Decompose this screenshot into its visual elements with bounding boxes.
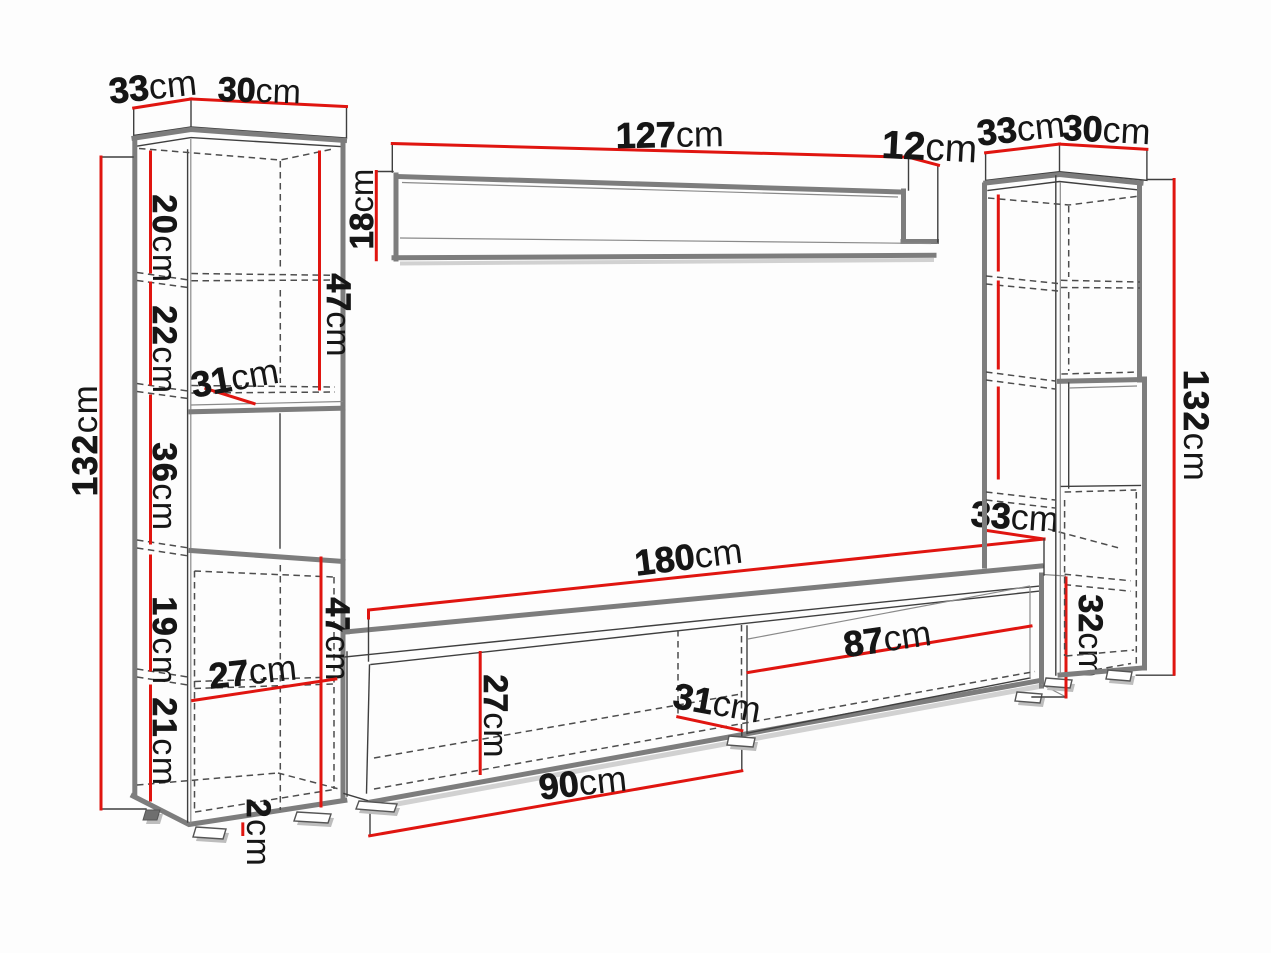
svg-text:12cm: 12cm xyxy=(881,124,979,172)
svg-text:47cm: 47cm xyxy=(318,597,356,680)
svg-text:21cm: 21cm xyxy=(145,697,183,786)
svg-text:36cm: 36cm xyxy=(145,442,183,531)
svg-text:22cm: 22cm xyxy=(145,305,183,394)
svg-text:127cm: 127cm xyxy=(615,113,724,156)
svg-text:30cm: 30cm xyxy=(217,71,301,112)
svg-text:19cm: 19cm xyxy=(145,596,183,685)
svg-text:27cm: 27cm xyxy=(476,674,514,757)
svg-text:20cm: 20cm xyxy=(145,194,183,283)
svg-text:18cm: 18cm xyxy=(343,169,380,250)
svg-text:30cm: 30cm xyxy=(1062,107,1152,153)
svg-text:32cm: 32cm xyxy=(1071,594,1109,677)
svg-text:2cm: 2cm xyxy=(239,799,277,868)
svg-text:132cm: 132cm xyxy=(1176,370,1215,483)
svg-text:47cm: 47cm xyxy=(319,273,357,356)
svg-text:132cm: 132cm xyxy=(66,384,105,497)
